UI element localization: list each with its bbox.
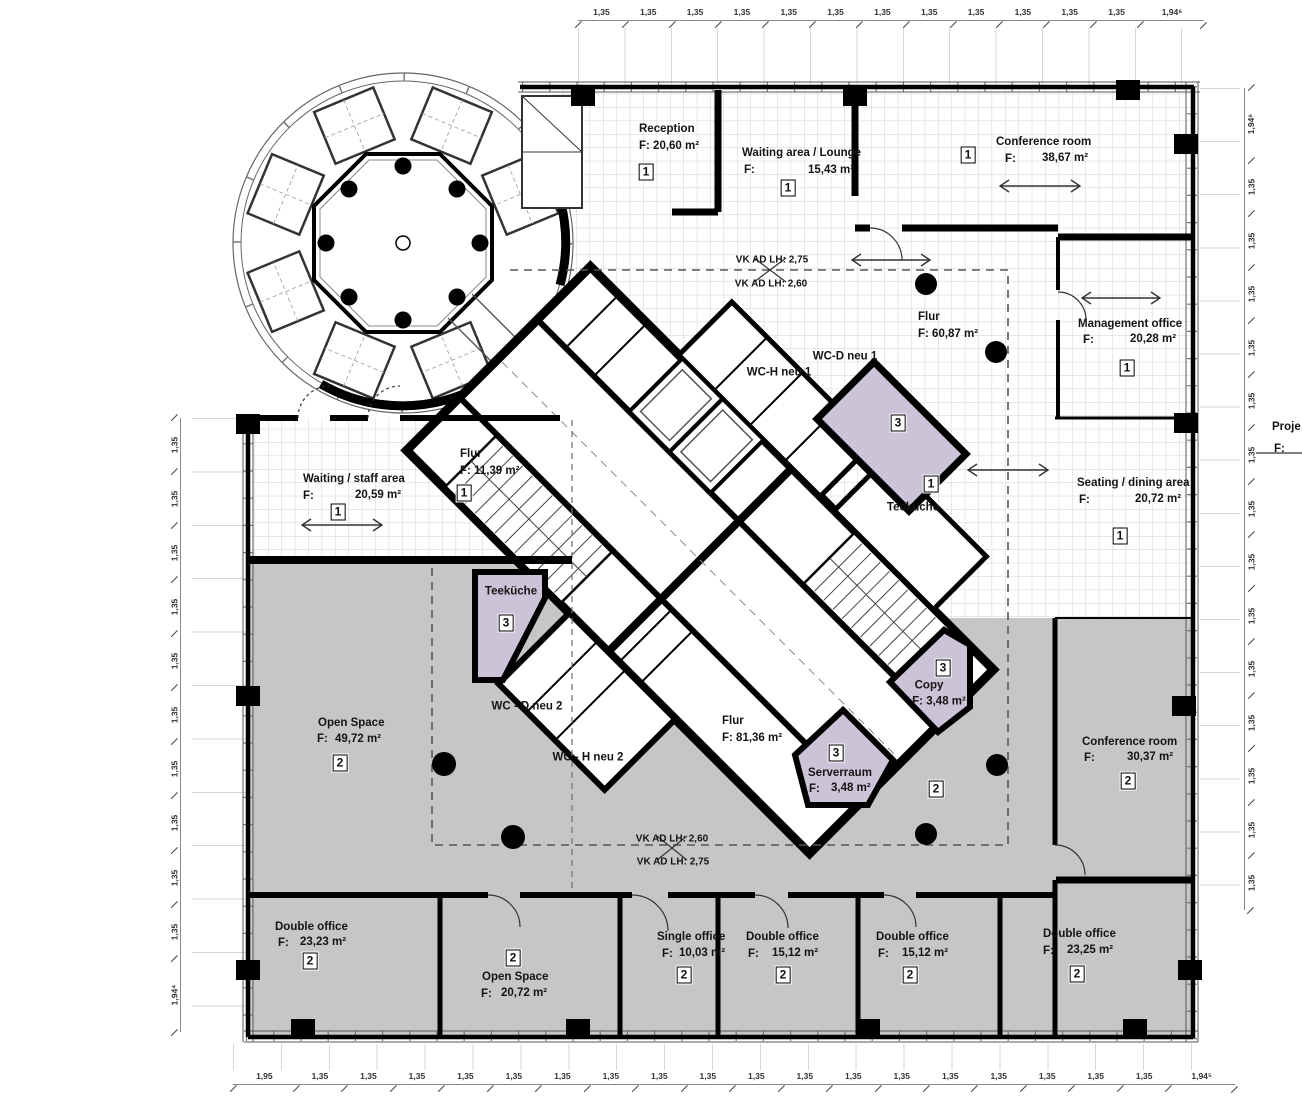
room-label-flur-central-name: Flur — [722, 715, 744, 728]
room-badge-conference2: 2 — [1121, 773, 1136, 790]
dimension-segment: 1,35 — [168, 688, 181, 742]
vk-note-bottom-lower: VK AD LH: 2,75 — [637, 857, 709, 868]
room-label-double1-area: 23,23 m² — [300, 936, 346, 949]
room-label-wc-d-1: WC-D neu 1 — [813, 351, 878, 364]
room-badge-double1: 2 — [303, 953, 318, 970]
dimension-segment: 1,35 — [1244, 161, 1257, 215]
room-label-waiting-lounge-area: 15,43 m² — [808, 164, 854, 177]
room-label-conference2-name: Conference room — [1082, 736, 1177, 749]
room-label-server-area: 3,48 m² — [831, 782, 871, 795]
dimension-segment: 1,35 — [1244, 803, 1257, 857]
room-label-single-area: 10,03 m² — [679, 947, 725, 960]
dimension-segment: 1,35 — [344, 1072, 392, 1085]
dimension-string-left: 1,351,351,351,351,351,351,351,351,351,35… — [168, 418, 181, 1032]
dimension-segment: 1,35 — [393, 1072, 441, 1085]
room-label-copy-name: Copy — [915, 680, 944, 693]
room-label-double3-area: 15,12 m² — [902, 947, 948, 960]
dimension-segment: 1,35 — [538, 1072, 586, 1085]
dimension-segment: 1,94⁴ — [168, 959, 181, 1032]
dimension-segment: 1,95 — [233, 1072, 296, 1085]
room-label-waiting-lounge-name: Waiting area / Lounge — [742, 147, 861, 160]
vk-note-bottom-upper: VK AD LH: 2,60 — [636, 834, 708, 845]
dimension-segment: 1,35 — [718, 8, 765, 21]
room-label-waiting-staff-name: Waiting / staff area — [303, 473, 405, 486]
room-label-conference2-area: 30,37 m² — [1127, 751, 1173, 764]
room-label-teekueche-west: Teeküche — [485, 586, 537, 599]
dimension-segment: 1,35 — [953, 8, 1000, 21]
room-label-double4-name: Double office — [1043, 928, 1116, 941]
dimension-segment: 1,35 — [1046, 8, 1093, 21]
dimension-segment: 1,35 — [926, 1072, 974, 1085]
dimension-segment: 1,35 — [1120, 1072, 1168, 1085]
dimension-segment: 1,35 — [1244, 268, 1257, 322]
dimension-segment: 1,35 — [1244, 589, 1257, 643]
annex-rooms — [522, 96, 582, 208]
dimension-segment: 1,35 — [635, 1072, 683, 1085]
room-label-conference2-f: F: — [1084, 752, 1095, 765]
room-label-management-name: Management office — [1078, 318, 1182, 331]
room-badge-conference1: 1 — [961, 147, 976, 164]
room-label-server-name: Serverraum — [808, 767, 872, 780]
room-badge-store-ne: 3 — [891, 415, 906, 432]
room-label-single-name: Single office — [657, 931, 725, 944]
dimension-segment: 1,35 — [1244, 749, 1257, 803]
room-label-conference1-area: 38,67 m² — [1042, 152, 1088, 165]
room-badge-server: 3 — [829, 745, 844, 762]
room-badge-openspace2: 2 — [506, 950, 521, 967]
room-badge-single: 2 — [677, 967, 692, 984]
dimension-segment: 1,35 — [168, 526, 181, 580]
dimension-segment: 1,35 — [1244, 696, 1257, 750]
dimension-segment: 1,94⁵ — [1168, 1072, 1234, 1085]
floor-plan-page: Reception F: 20,60 m² 1 Waiting area / L… — [0, 0, 1302, 1112]
dimension-segment: 1,35 — [578, 8, 625, 21]
room-badge-double4: 2 — [1070, 966, 1085, 983]
room-label-waiting-lounge-f: F: — [744, 164, 755, 177]
dimension-segment: 1,35 — [765, 8, 812, 21]
room-label-flur-west-area: F: 11,39 m² — [460, 465, 519, 478]
dimension-segment: 1,35 — [1244, 214, 1257, 268]
room-label-management-area: 20,28 m² — [1130, 333, 1176, 346]
dimension-string-right: 1,94⁶1,351,351,351,351,351,351,351,351,3… — [1244, 88, 1257, 910]
dimension-segment: 1,35 — [168, 580, 181, 634]
dimension-segment: 1,35 — [625, 8, 672, 21]
dimension-segment: 1,35 — [732, 1072, 780, 1085]
room-label-openspace1-area: 49,72 m² — [335, 733, 381, 746]
room-label-waiting-staff-f: F: — [303, 490, 314, 503]
dimension-segment: 1,35 — [168, 796, 181, 850]
room-label-double2-f: F: — [748, 948, 759, 961]
dimension-segment: 1,35 — [1244, 375, 1257, 429]
dimension-segment: 1,35 — [1071, 1072, 1119, 1085]
dimension-segment: 1,35 — [168, 634, 181, 688]
room-label-double2-name: Double office — [746, 931, 819, 944]
dimension-segment: 1,35 — [812, 8, 859, 21]
dimension-segment: 1,35 — [1244, 535, 1257, 589]
room-badge-double2: 2 — [776, 967, 791, 984]
room-label-waiting-staff-area: 20,59 m² — [355, 489, 401, 502]
dimension-segment: 1,35 — [672, 8, 719, 21]
dimension-segment: 1,94⁶ — [1140, 8, 1204, 21]
dimension-segment: 1,35 — [1244, 428, 1257, 482]
room-label-seating-f: F: — [1079, 494, 1090, 507]
room-badge-waiting-lounge: 1 — [781, 180, 796, 197]
dimension-segment: 1,35 — [168, 742, 181, 796]
room-label-flur-upper-area: F: 60,87 m² — [918, 328, 978, 341]
room-label-double1-name: Double office — [275, 921, 348, 934]
room-badge-flur-west: 1 — [457, 485, 472, 502]
dimension-segment: 1,35 — [441, 1072, 489, 1085]
dimension-segment: 1,35 — [1244, 856, 1257, 910]
room-label-reception-area: F: 20,60 m² — [639, 140, 699, 153]
room-label-double2-area: 15,12 m² — [772, 947, 818, 960]
room-label-openspace2-area: 20,72 m² — [501, 987, 547, 1000]
room-label-flur-upper-name: Flur — [918, 311, 940, 324]
dimension-segment: 1,35 — [974, 1072, 1022, 1085]
room-label-teekueche-east: Teeküche — [887, 502, 939, 515]
room-label-server-f: F: — [809, 783, 820, 796]
dimension-segment: 1,35 — [1023, 1072, 1071, 1085]
room-label-seating-area: 20,72 m² — [1135, 493, 1181, 506]
room-label-double1-f: F: — [278, 937, 289, 950]
dimension-segment: 1,35 — [829, 1072, 877, 1085]
dimension-segment: 1,35 — [168, 472, 181, 526]
dimension-segment: 1,35 — [168, 905, 181, 959]
room-label-conference1-f: F: — [1005, 153, 1016, 166]
room-label-double3-name: Double office — [876, 931, 949, 944]
dimension-segment: 1,35 — [1244, 642, 1257, 696]
room-label-double4-area: 23,25 m² — [1067, 944, 1113, 957]
room-label-openspace2-name: Open Space — [482, 971, 548, 984]
dimension-segment: 1,94⁶ — [1244, 88, 1257, 161]
dimension-segment: 1,35 — [1093, 8, 1140, 21]
room-label-copy-area: F: 3,48 m² — [912, 696, 966, 709]
dimension-segment: 1,35 — [684, 1072, 732, 1085]
dimension-segment: 1,35 — [1244, 321, 1257, 375]
room-label-double3-f: F: — [878, 948, 889, 961]
dimension-string-top: 1,351,351,351,351,351,351,351,351,351,35… — [578, 8, 1204, 21]
room-label-openspace1-name: Open Space — [318, 717, 384, 730]
dimension-string-bottom: 1,951,351,351,351,351,351,351,351,351,35… — [233, 1072, 1235, 1085]
vk-note-top-upper: VK AD LH: 2,75 — [736, 255, 808, 266]
room-label-conference1-name: Conference room — [996, 136, 1091, 149]
dimension-segment: 1,35 — [587, 1072, 635, 1085]
room-label-wc-h-1: WC-H neu 1 — [747, 367, 812, 380]
room-badge-openspace1: 2 — [333, 755, 348, 772]
dimension-segment: 1,35 — [296, 1072, 344, 1085]
dimension-segment: 1,35 — [878, 1072, 926, 1085]
edge-note-title: Proje — [1272, 421, 1301, 434]
room-label-reception-name: Reception — [639, 123, 695, 136]
room-label-flur-central-area: F: 81,36 m² — [722, 732, 782, 745]
room-label-openspace1-f: F: — [317, 733, 328, 746]
dimension-segment: 1,35 — [168, 851, 181, 905]
room-label-openspace2-f: F: — [481, 988, 492, 1001]
room-badge-teekueche-east: 1 — [924, 476, 939, 493]
room-badge-reception: 1 — [639, 164, 654, 181]
room-label-wc-h-2: WC - H neu 2 — [553, 752, 624, 765]
dimension-segment: 1,35 — [999, 8, 1046, 21]
vk-note-top-lower: VK AD LH: 2,60 — [735, 279, 807, 290]
dimension-segment: 1,35 — [168, 418, 181, 472]
dimension-segment: 1,35 — [906, 8, 953, 21]
room-badge-teekueche-west: 3 — [499, 615, 514, 632]
room-label-double4-f: F: — [1043, 945, 1054, 958]
room-badge-copy: 3 — [936, 660, 951, 677]
room-label-management-f: F: — [1083, 334, 1094, 347]
room-label-wc-d-2: WC - D neu 2 — [492, 701, 563, 714]
zone2-marker-badge: 2 — [929, 781, 944, 798]
dimension-segment: 1,35 — [490, 1072, 538, 1085]
dimension-segment: 1,35 — [859, 8, 906, 21]
room-label-single-f: F: — [662, 948, 673, 961]
room-label-flur-west-name: Flur — [460, 448, 482, 461]
room-badge-double3: 2 — [903, 967, 918, 984]
room-badge-waiting-staff: 1 — [331, 504, 346, 521]
room-badge-seating: 1 — [1113, 528, 1128, 545]
dimension-segment: 1,35 — [1244, 482, 1257, 536]
room-label-seating-name: Seating / dining area — [1077, 477, 1189, 490]
room-badge-management: 1 — [1120, 360, 1135, 377]
edge-note-f: F: — [1274, 443, 1285, 456]
dimension-segment: 1,35 — [781, 1072, 829, 1085]
